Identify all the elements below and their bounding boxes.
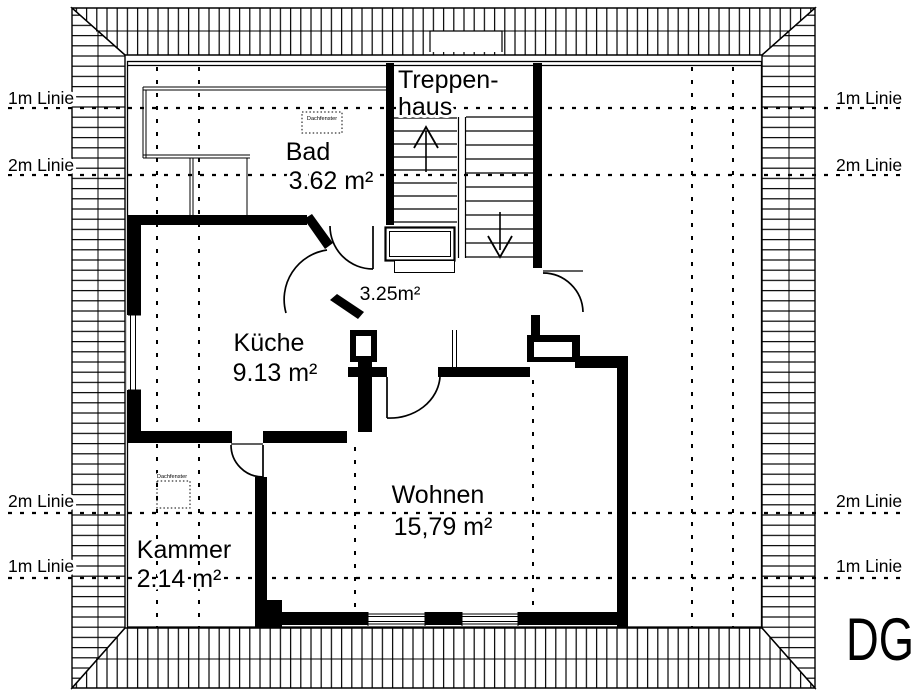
living-bottom-wall — [255, 612, 628, 625]
label-1m-right-bottom: 1m Linie — [836, 556, 902, 576]
kitchen-left-wall-lower — [128, 390, 141, 433]
roof-window-kammer-label: Dachfenster — [157, 474, 187, 480]
chimney-stub — [531, 315, 540, 337]
living-left-wall — [255, 477, 267, 614]
label-2m-right-bottom: 2m Linie — [836, 491, 902, 511]
room-bad-name: Bad — [286, 138, 330, 166]
label-1m-left-bottom: 1m Linie — [8, 556, 74, 576]
living-right-wall — [617, 356, 628, 627]
living-top-wall-left — [348, 367, 387, 377]
kitchen-top-wall — [128, 215, 307, 225]
kitchen-bottom-wall-left — [128, 431, 232, 443]
window-living-2 — [462, 611, 518, 626]
window-kitchen — [127, 315, 142, 390]
roof-notch — [430, 31, 502, 52]
label-2m-left-bottom: 2m Linie — [8, 491, 74, 511]
window-living-1 — [368, 611, 425, 626]
chimney-living-flue — [534, 342, 572, 357]
chimney-kitchen-flue — [356, 336, 371, 356]
label-2m-left-top: 2m Linie — [8, 155, 74, 175]
label-1m-right-top: 1m Linie — [836, 88, 902, 108]
living-top-wall-right — [438, 367, 530, 377]
hatch-band-bottom — [72, 628, 815, 688]
label-2m-right-top: 2m Linie — [836, 155, 902, 175]
stairwell-right-wall — [533, 63, 542, 268]
label-1m-left-top: 1m Linie — [8, 88, 74, 108]
floorplan-drawing: Dachfenster Dachfenster Treppen- haus Ba… — [0, 0, 920, 690]
kitchen-left-wall-upper — [128, 225, 141, 315]
room-bad-area: 3.62 m² — [289, 167, 374, 195]
room-kammer-area: 2.14 m² — [137, 565, 222, 593]
stairwell-left-wall — [386, 63, 394, 225]
room-kueche-area: 9.13 m² — [233, 359, 318, 387]
room-wohnen-area: 15,79 m² — [394, 513, 493, 541]
roof-window-bad-label: Dachfenster — [307, 116, 337, 122]
kitchen-bottom-wall-right — [263, 431, 347, 443]
floorplan-page: Dachfenster Dachfenster Treppen- haus Ba… — [0, 0, 920, 690]
room-wohnen-name: Wohnen — [392, 481, 485, 509]
understair-closet — [386, 228, 455, 273]
room-flur-area: 3.25m² — [360, 283, 421, 305]
floor-tag: DG — [846, 606, 914, 673]
stairwell-label-line2: haus — [398, 93, 452, 121]
room-kueche-name: Küche — [234, 329, 305, 357]
stairwell-label-line1: Treppen- — [398, 66, 499, 94]
room-kammer-name: Kammer — [137, 536, 231, 564]
